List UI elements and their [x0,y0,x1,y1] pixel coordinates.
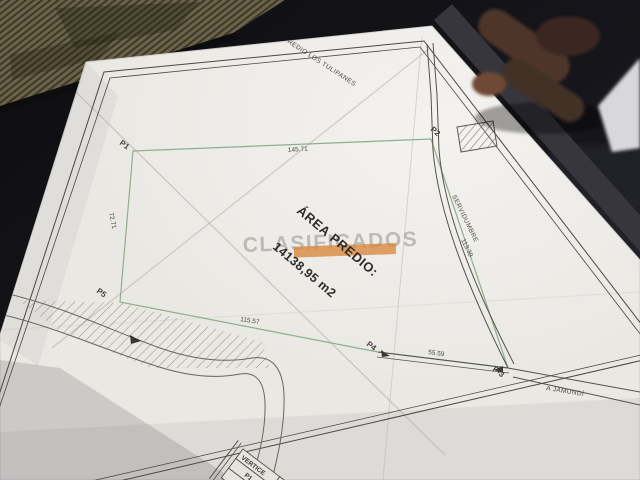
knuckle [536,16,600,56]
length-p1-p2: 145.71 [288,146,309,154]
photo-of-survey-plan: PREDIO LOS TULIPANES [0,0,640,480]
plan-photo-canvas: PREDIO LOS TULIPANES [0,0,640,480]
fingertip [472,72,506,96]
